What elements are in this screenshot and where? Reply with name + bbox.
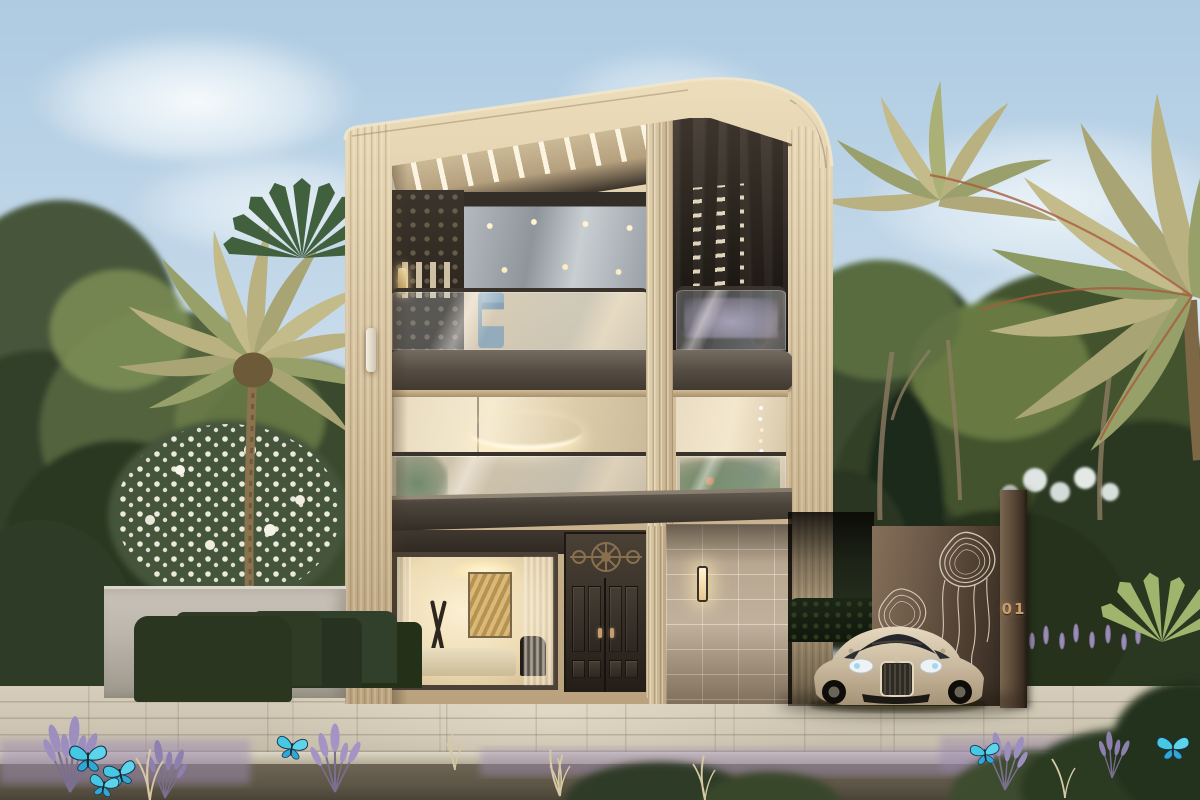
- lavender-clump: [308, 724, 363, 794]
- foreground-shrubs: [565, 680, 1200, 800]
- villa-render-scene: 01: [0, 0, 1200, 800]
- front-fan-palm: [1097, 571, 1200, 648]
- foreground-planting: [0, 0, 1200, 800]
